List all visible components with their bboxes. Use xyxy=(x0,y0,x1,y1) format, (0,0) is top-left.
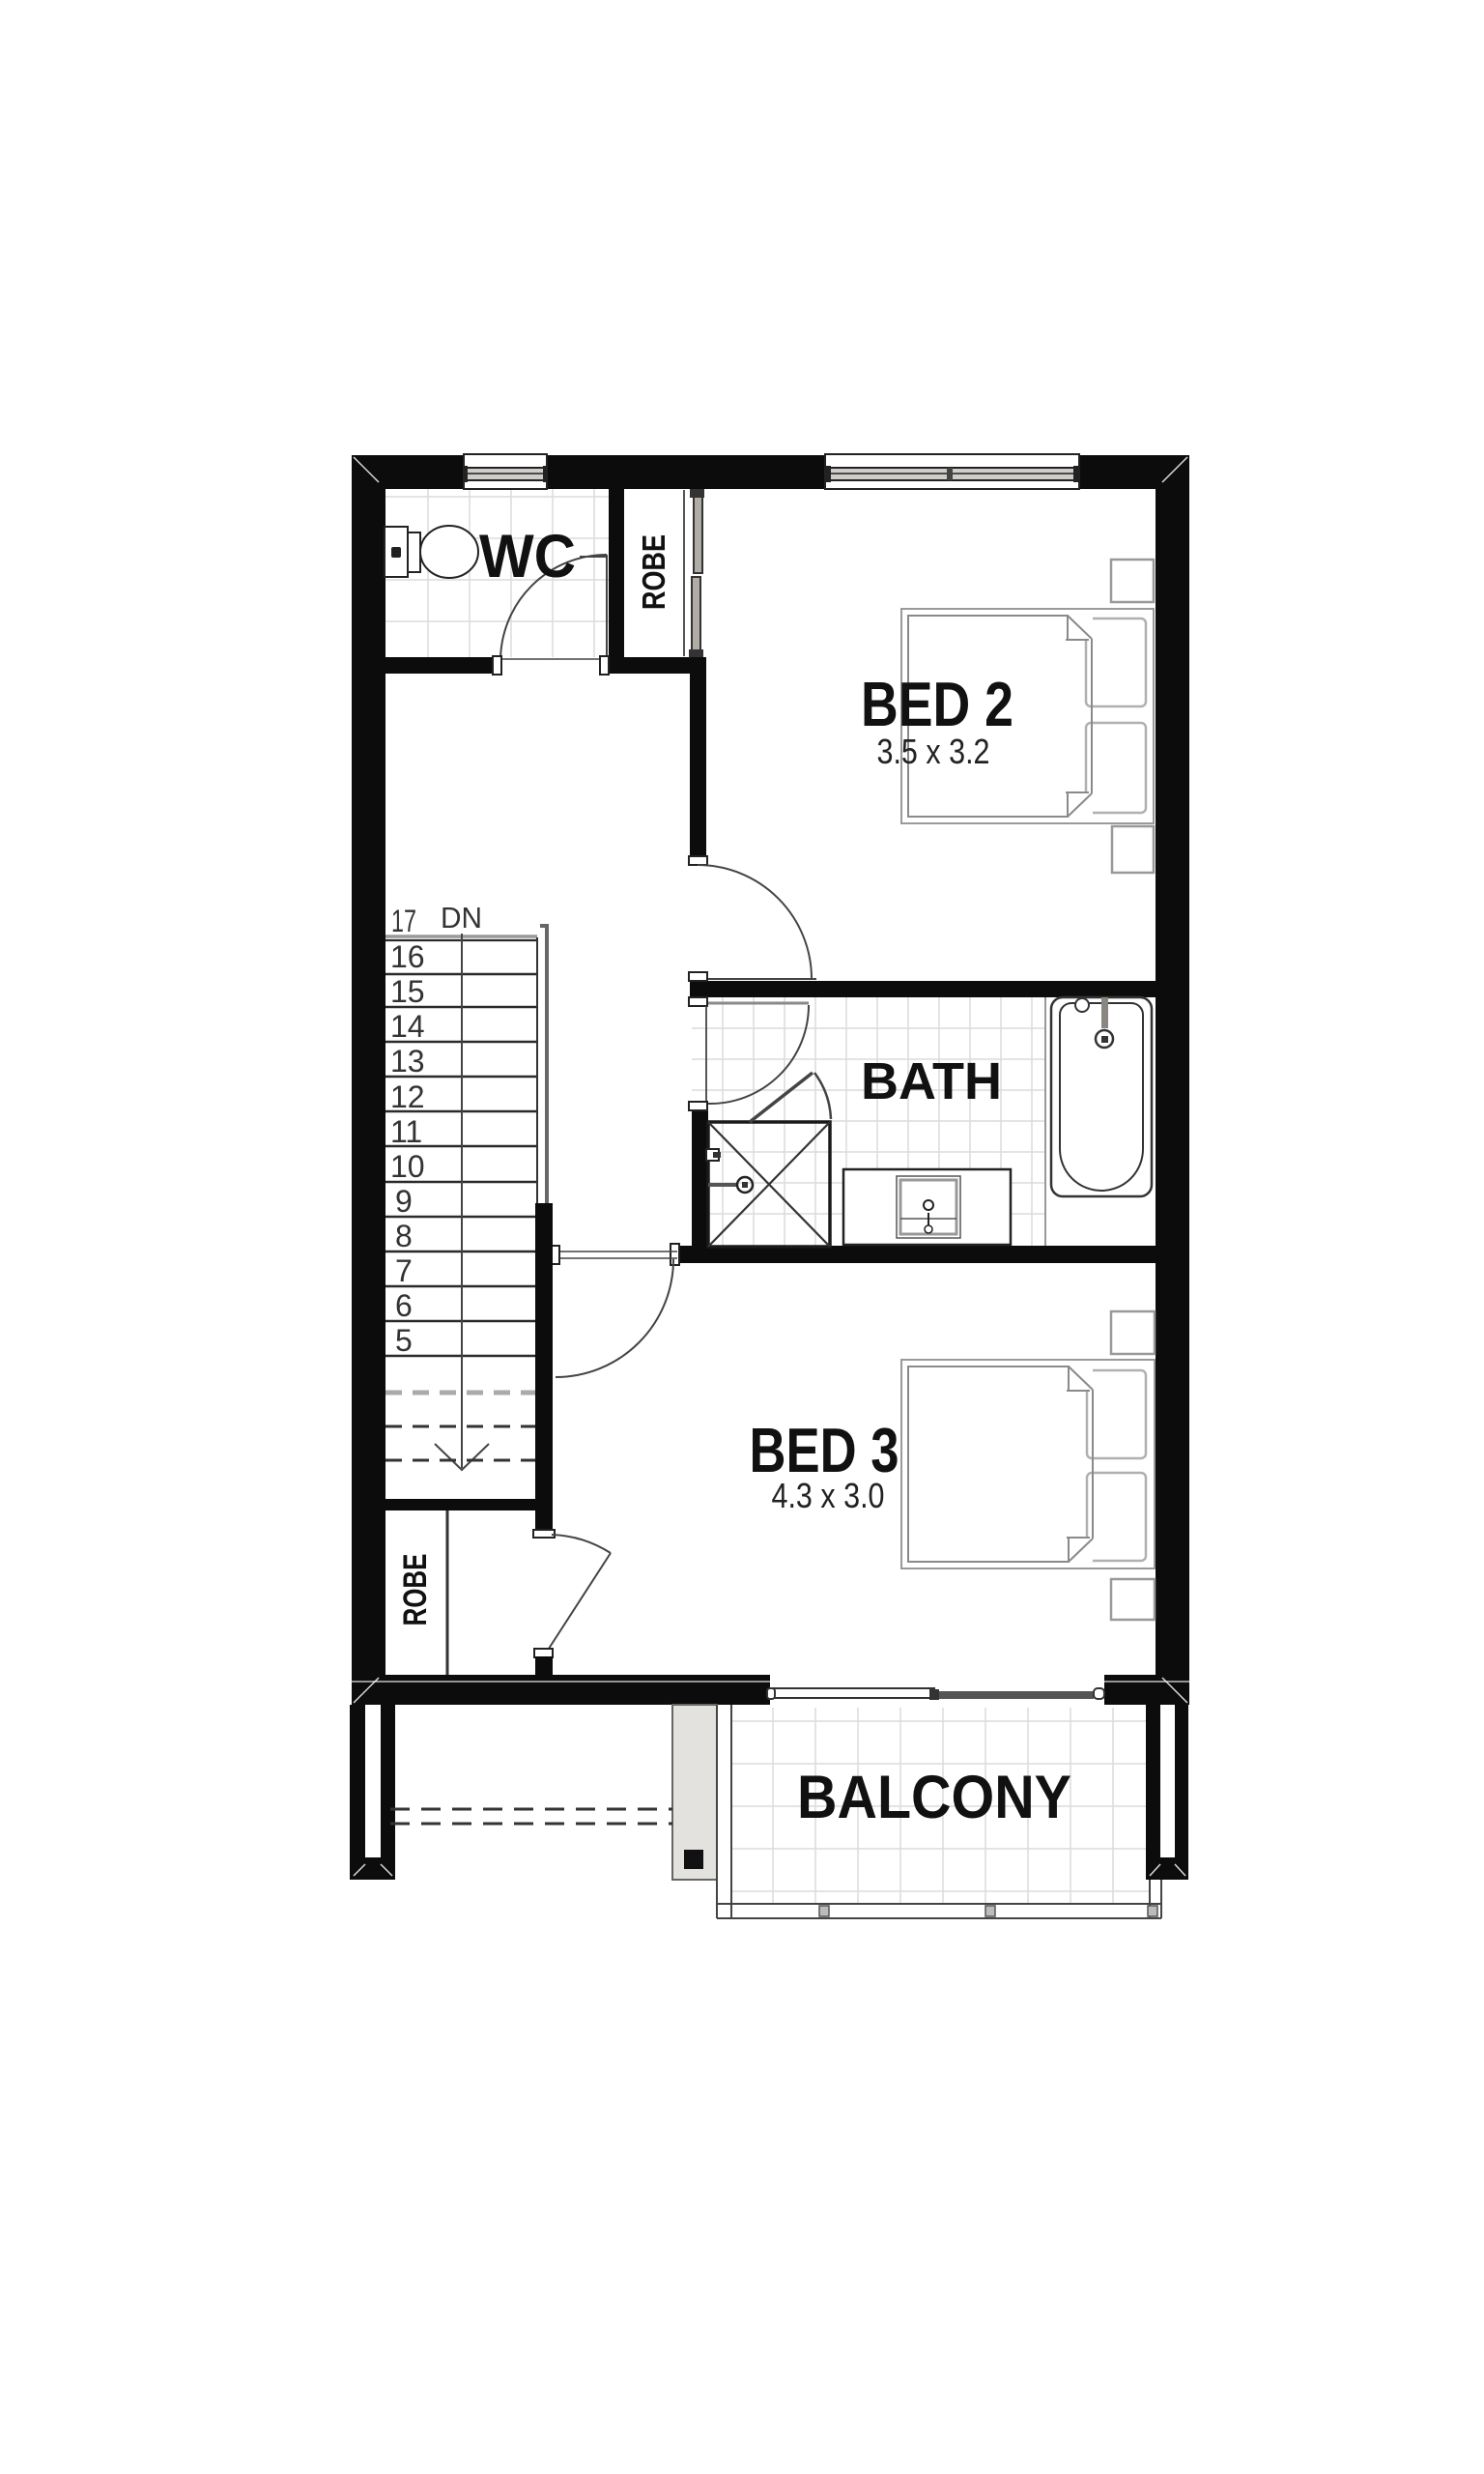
svg-text:9: 9 xyxy=(395,1184,413,1219)
svg-text:WC: WC xyxy=(479,523,576,590)
svg-text:14: 14 xyxy=(390,1009,425,1044)
svg-text:11: 11 xyxy=(390,1114,422,1149)
svg-text:ROBE: ROBE xyxy=(636,534,671,610)
svg-text:15: 15 xyxy=(390,974,425,1009)
svg-text:16: 16 xyxy=(390,939,425,974)
svg-text:12: 12 xyxy=(390,1079,425,1114)
svg-text:13: 13 xyxy=(390,1044,425,1079)
svg-text:BATH: BATH xyxy=(861,1052,1002,1110)
svg-text:10: 10 xyxy=(390,1149,425,1184)
svg-text:3.5 x 3.2: 3.5 x 3.2 xyxy=(877,732,990,771)
svg-text:BED 2: BED 2 xyxy=(861,669,1013,739)
svg-text:ROBE: ROBE xyxy=(397,1554,434,1626)
svg-text:4.3 x 3.0: 4.3 x 3.0 xyxy=(772,1476,885,1515)
svg-text:17: 17 xyxy=(391,904,416,938)
svg-text:8: 8 xyxy=(395,1219,413,1253)
svg-text:BALCONY: BALCONY xyxy=(797,1764,1071,1831)
svg-text:7: 7 xyxy=(395,1253,413,1288)
svg-text:DN: DN xyxy=(441,901,482,935)
svg-text:6: 6 xyxy=(395,1288,413,1323)
svg-text:5: 5 xyxy=(395,1323,413,1358)
